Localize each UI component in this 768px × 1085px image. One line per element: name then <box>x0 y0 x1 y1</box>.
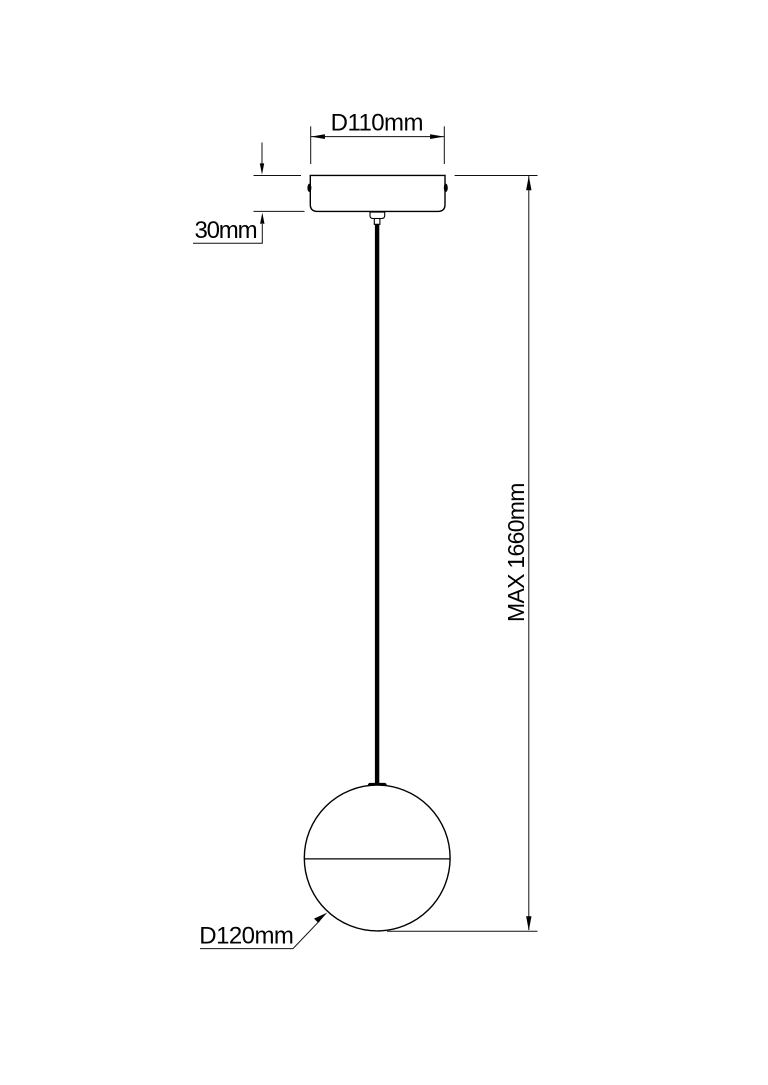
svg-text:D120mm: D120mm <box>199 922 293 949</box>
svg-text:MAX 1660mm: MAX 1660mm <box>503 483 529 622</box>
svg-text:30mm: 30mm <box>195 217 257 244</box>
svg-text:D110mm: D110mm <box>331 110 423 137</box>
